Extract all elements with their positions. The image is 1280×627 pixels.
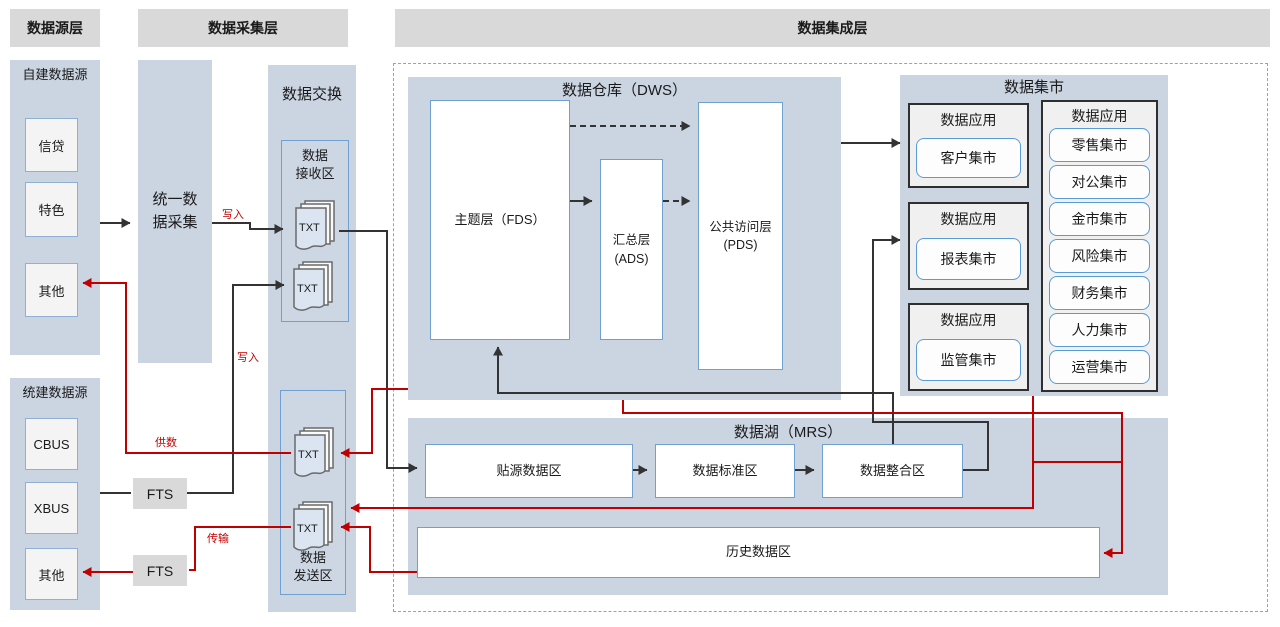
mrs-title: 数据湖（MRS） [408,424,1168,443]
edge-label-transfer: 传输 [207,530,229,546]
edge-label-write-1: 写入 [222,206,244,222]
fts-box-2: FTS [133,555,187,586]
txt-label: TXT [299,222,320,234]
mart-customer: 客户集市 [916,138,1021,178]
header-integration-layer-label: 数据集成层 [798,18,868,38]
edge-label-write-2: 写入 [237,349,259,365]
txt-file-icon-receive-1: TXT [292,200,338,252]
txt-label: TXT [298,449,319,461]
data-app-label-1: 数据应用 [908,110,1029,130]
data-receive-label: 数据 接收区 [281,147,349,182]
mart-report: 报表集市 [916,238,1021,280]
data-exchange-title: 数据交换 [268,86,356,105]
item-other-unified: 其他 [25,548,78,600]
item-xbus: XBUS [25,482,78,534]
txt-file-icon-send-2: TXT [290,501,336,553]
data-app-label-3: 数据应用 [908,310,1029,330]
mart-finance: 财务集市 [1049,276,1150,310]
dws-title: 数据仓库（DWS） [408,82,841,101]
mart-regulatory: 监管集市 [916,339,1021,381]
zone-history-data: 历史数据区 [417,527,1100,578]
header-source-layer-label: 数据源层 [27,18,83,38]
txt-label: TXT [297,523,318,535]
mart-hr: 人力集市 [1049,313,1150,347]
data-marts-title: 数据集市 [900,79,1168,98]
header-collection-layer-label: 数据采集层 [208,18,278,38]
txt-file-icon-send-1: TXT [291,427,337,479]
mart-risk: 风险集市 [1049,239,1150,273]
mart-corporate: 对公集市 [1049,165,1150,199]
item-special: 特色 [25,182,78,237]
data-app-label-2: 数据应用 [908,209,1029,229]
zone-data-integration: 数据整合区 [822,444,963,498]
data-send-label: 数据 发送区 [280,549,346,584]
txt-file-icon-receive-2: TXT [290,261,336,313]
mart-retail: 零售集市 [1049,128,1150,162]
mart-operations: 运营集市 [1049,350,1150,384]
unified-sources-title: 统建数据源 [10,384,100,402]
zone-source-data: 贴源数据区 [425,444,633,498]
box-ads: 汇总层 (ADS) [600,159,663,340]
header-integration-layer: 数据集成层 [395,9,1270,47]
box-fds: 主题层（FDS） [430,100,570,340]
self-built-sources-title: 自建数据源 [10,66,100,84]
item-other-self: 其他 [25,263,78,317]
header-source-layer: 数据源层 [10,9,100,47]
item-cbus: CBUS [25,418,78,470]
edge-label-supply: 供数 [155,434,177,450]
fts-box-1: FTS [133,478,187,509]
data-app-label-4: 数据应用 [1041,106,1158,126]
box-pds: 公共访问层 (PDS) [698,102,783,370]
zone-data-standard: 数据标准区 [655,444,795,498]
mart-goldmarket: 金市集市 [1049,202,1150,236]
txt-label: TXT [297,283,318,295]
header-collection-layer: 数据采集层 [138,9,348,47]
diagram-canvas: 数据源层 数据采集层 数据集成层 自建数据源 信贷 特色 其他 统建数据源 CB… [0,0,1280,627]
panel-unified-collection: 统一数 据采集 [138,60,212,363]
item-credit: 信贷 [25,118,78,172]
